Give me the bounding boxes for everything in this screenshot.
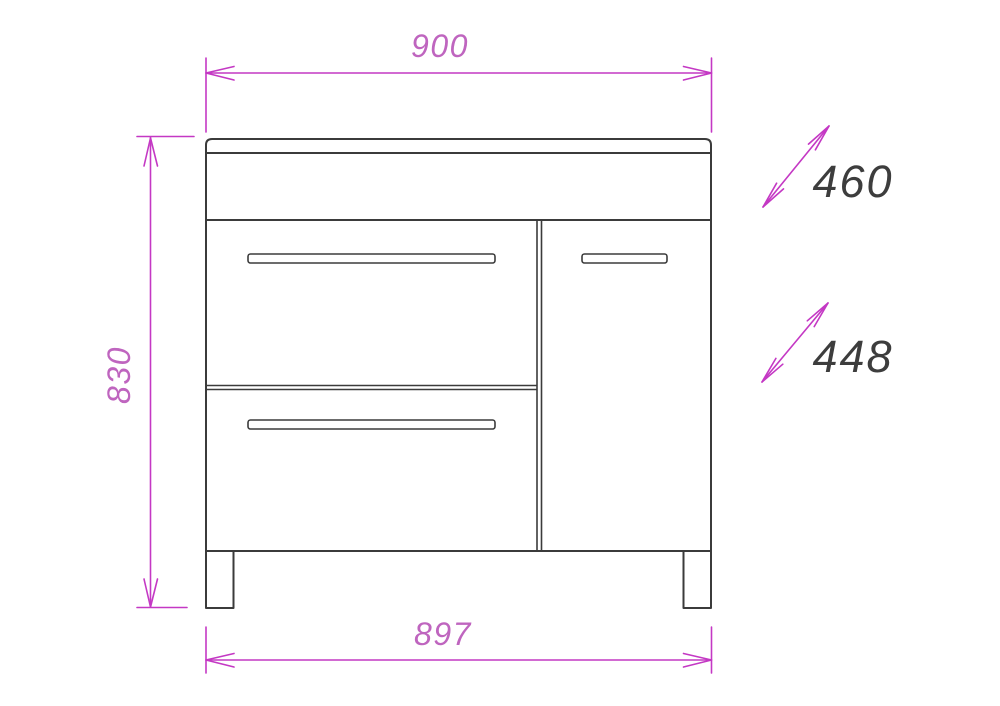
cabinet-body	[206, 153, 711, 551]
overall-width-label: 900	[411, 28, 469, 64]
dimension-lines	[137, 58, 829, 673]
depth-top-label: 460	[812, 156, 893, 207]
base-width-label: 897	[414, 616, 472, 652]
technical-drawing-page: 900 830 897 460 448	[0, 0, 1000, 706]
panel-details	[206, 220, 667, 551]
right-leg	[684, 551, 712, 608]
door-handle	[582, 254, 667, 263]
bottom-drawer-handle	[248, 420, 495, 429]
countertop	[206, 139, 711, 153]
dim-overall-width	[206, 58, 712, 132]
overall-height-label: 830	[101, 346, 137, 404]
left-leg	[206, 551, 234, 608]
cabinet-dimension-drawing: 900 830 897 460 448	[0, 0, 1000, 706]
depth-bottom-label: 448	[812, 331, 893, 382]
cabinet-outline	[206, 139, 711, 608]
dim-overall-height	[137, 137, 194, 608]
dimension-labels: 900 830 897 460 448	[101, 28, 894, 652]
top-drawer-handle	[248, 254, 495, 263]
